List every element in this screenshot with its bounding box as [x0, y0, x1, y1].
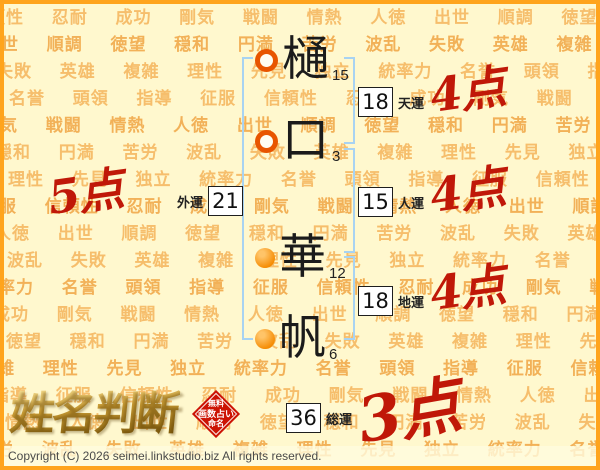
- name-kanji: 華: [279, 234, 326, 282]
- tenun-score: 4点: [427, 63, 507, 119]
- tenun-fortune: 18 天運: [358, 87, 424, 117]
- gaiun-score: 5点: [45, 165, 125, 221]
- gaiun-label: 外運: [177, 192, 203, 211]
- tenun-value-box: 18: [358, 87, 393, 117]
- seal-line: 命名: [208, 419, 224, 429]
- name-char-row: 樋 15: [255, 36, 349, 84]
- chiun-score: 4点: [427, 261, 507, 317]
- soun-fortune: 36 総運: [286, 403, 352, 433]
- gaiun-fortune: 外運 21: [177, 186, 243, 216]
- stroke-count: 3: [332, 149, 340, 165]
- seal-line: 無料: [208, 399, 224, 409]
- givenname-marker-icon: [255, 329, 275, 349]
- name-char-row: 帆 6: [255, 315, 337, 363]
- chiun-value-box: 18: [358, 286, 393, 316]
- tenun-label: 天運: [398, 93, 424, 112]
- watermark-row: 信頼性 忍耐 成功 剛気 戦闘 情熱 人徳 出世 順調 徳望: [0, 3, 598, 28]
- name-kanji: 帆: [279, 315, 326, 363]
- name-kanji: 樋: [282, 36, 329, 84]
- seal-text: 無料 画数占い 命名: [190, 388, 242, 440]
- stroke-count: 15: [332, 68, 349, 84]
- name-kanji: 口: [282, 117, 329, 165]
- site-logo[interactable]: 姓名判断 無料 画数占い 命名: [10, 388, 242, 440]
- site-logo-title: 姓名判断: [7, 388, 180, 440]
- soun-value-box: 36: [286, 403, 321, 433]
- free-naming-seal: 無料 画数占い 命名: [190, 388, 242, 440]
- jinun-fortune: 15 人運: [358, 187, 424, 217]
- soun-label: 総運: [326, 409, 352, 428]
- gaiun-bracket: [242, 57, 253, 340]
- jinun-score: 4点: [427, 163, 507, 219]
- watermark-row: 名誉 頭領 指導 征服 信頼性 忍耐 成功 剛気 戦闘 情熱: [9, 84, 600, 109]
- givenname-marker-icon: [255, 248, 275, 268]
- seal-line: 画数占い: [198, 409, 234, 420]
- chiun-label: 地運: [398, 292, 424, 311]
- name-char-row: 口 3: [255, 117, 340, 165]
- seimei-handan-result-page: 信頼性 忍耐 成功 剛気 戦闘 情熱 人徳 出世 順調 徳望出世 順調 徳望 穏…: [0, 0, 600, 470]
- name-char-row: 華 12: [255, 234, 346, 282]
- gaiun-value-box: 21: [208, 186, 243, 216]
- chiun-fortune: 18 地運: [358, 286, 424, 316]
- copyright-text: Copyright (C) 2026 seimei.linkstudio.biz…: [8, 449, 321, 463]
- surname-marker-icon: [255, 49, 278, 72]
- soun-score: 3点: [353, 374, 463, 453]
- stroke-count: 12: [329, 266, 346, 282]
- jinun-label: 人運: [398, 193, 424, 212]
- surname-marker-icon: [255, 130, 278, 153]
- jinun-value-box: 15: [358, 187, 393, 217]
- stroke-count: 6: [329, 347, 337, 363]
